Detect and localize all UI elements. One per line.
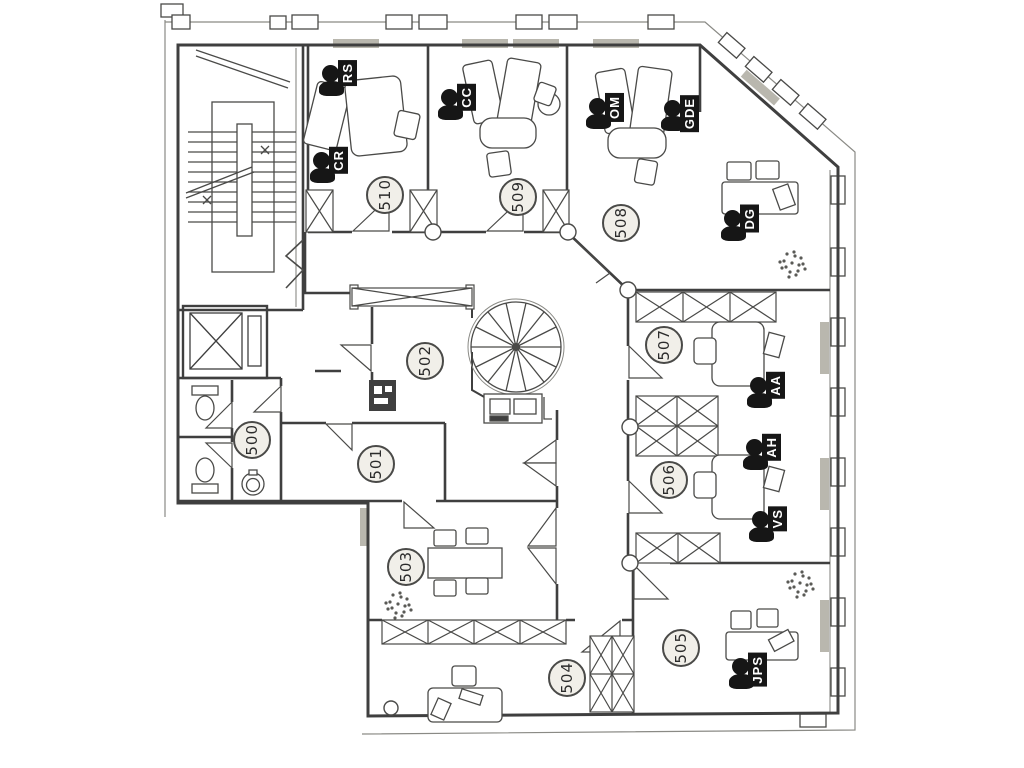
person-icon	[322, 65, 339, 82]
room-label-503: 503	[387, 548, 425, 586]
toilet-bowl-2	[196, 458, 214, 482]
shelf-506-507	[636, 396, 718, 456]
shelf-510-left	[306, 190, 333, 232]
occupant-initials: DG	[740, 205, 759, 233]
room-number: 510	[378, 179, 393, 211]
person-icon	[724, 210, 741, 227]
meeting-table-503	[428, 528, 502, 596]
toilet-tank-2	[192, 484, 218, 493]
shelf-504-top	[382, 620, 566, 644]
occupant-initials: GDE	[680, 95, 699, 132]
door-anteroom-b	[524, 463, 556, 486]
door-503-top	[404, 502, 434, 528]
shelf-502-top	[350, 285, 474, 309]
room-label-509: 509	[499, 178, 537, 216]
occupant-marker-vs: VS	[752, 506, 796, 552]
occupant-marker-gde: GDE	[664, 95, 708, 141]
room-number: 502	[418, 345, 433, 377]
occupant-marker-om: OM	[589, 93, 633, 139]
person-icon	[441, 89, 458, 106]
shelf-504-right	[590, 636, 634, 712]
room-label-501: 501	[357, 445, 395, 483]
room-label-506: 506	[650, 461, 688, 499]
room-number: 506	[662, 464, 677, 496]
person-icon	[752, 511, 769, 528]
washbasin-tap	[249, 470, 257, 475]
room-label-504: 504	[548, 659, 586, 697]
person-icon	[664, 100, 681, 117]
desk-504	[428, 666, 502, 722]
person-icon	[746, 439, 763, 456]
plant-1	[778, 250, 806, 278]
occupant-marker-jps: JPS	[732, 653, 776, 699]
stair-direction-marks	[203, 146, 269, 204]
shelf-505-506	[636, 533, 720, 563]
room-number: 500	[245, 424, 260, 456]
room-number: 509	[511, 181, 526, 213]
occupant-initials: VS	[768, 506, 787, 531]
toilet-bowl-1	[196, 396, 214, 420]
plant-3	[384, 591, 412, 619]
room-number: 508	[614, 207, 629, 239]
occupant-initials: JPS	[748, 653, 767, 687]
door-503-right-a	[528, 508, 556, 546]
room-number: 503	[399, 551, 414, 583]
occupant-initials: CC	[457, 84, 476, 111]
door-503-right-b	[528, 548, 556, 584]
person-icon	[589, 98, 606, 115]
room-number: 501	[369, 448, 384, 480]
occupant-initials: AH	[762, 434, 781, 461]
washbasin-bowl	[247, 479, 260, 492]
room-number: 505	[674, 632, 689, 664]
occupant-marker-cc: CC	[441, 84, 485, 130]
main-staircase	[186, 50, 296, 272]
person-icon	[750, 377, 767, 394]
door-anteroom-a	[524, 440, 556, 463]
occupant-marker-dg: DG	[724, 205, 768, 251]
occupant-marker-ah: AH	[746, 434, 790, 480]
stair-landing-rail	[196, 50, 290, 88]
room-number: 507	[657, 329, 672, 361]
room-label-500: 500	[233, 421, 271, 459]
person-icon	[732, 658, 749, 675]
plant-2	[786, 570, 814, 598]
occupant-marker-rs: RS	[322, 60, 366, 106]
occupant-marker-aa: AA	[750, 372, 794, 418]
door-505	[634, 565, 668, 599]
person-icon	[313, 152, 330, 169]
spiral-staircase	[468, 299, 564, 395]
occupant-initials: OM	[605, 93, 624, 122]
room-label-505: 505	[662, 629, 700, 667]
kitchenette	[369, 380, 396, 411]
occupant-initials: AA	[766, 372, 785, 399]
room-number: 504	[560, 662, 575, 694]
elevator-cab-x	[190, 313, 242, 369]
toilet-tank-1	[192, 386, 218, 395]
copier	[484, 394, 552, 423]
door-501	[326, 424, 352, 450]
door-508	[575, 240, 610, 283]
room-label-510: 510	[366, 176, 404, 214]
room-label-502: 502	[406, 342, 444, 380]
room-label-508: 508	[602, 204, 640, 242]
elevator	[183, 306, 267, 378]
door-stairs-zigzag	[286, 240, 303, 288]
room-label-507: 507	[645, 326, 683, 364]
occupant-initials: RS	[338, 60, 357, 86]
door-500	[254, 386, 281, 412]
shelf-507-top	[636, 292, 776, 322]
occupant-marker-cr: CR	[313, 147, 357, 193]
floor-plan-drawing	[0, 0, 1024, 768]
floor-plan: 500 501 502 503 504 505 506 507 508 509 …	[0, 0, 1024, 768]
door-502	[341, 345, 371, 371]
occupant-initials: CR	[329, 147, 348, 174]
